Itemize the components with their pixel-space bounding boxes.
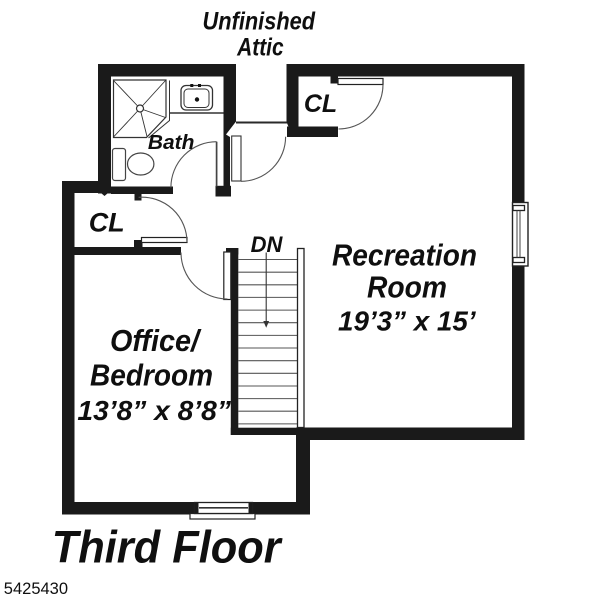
svg-text:Room: Room: [367, 271, 447, 305]
svg-text:Unfinished: Unfinished: [203, 8, 316, 36]
svg-text:CL: CL: [89, 208, 125, 238]
svg-text:Third Floor: Third Floor: [52, 522, 283, 573]
svg-text:Office/: Office/: [110, 324, 202, 358]
svg-text:19’3” x 15’: 19’3” x 15’: [338, 305, 477, 336]
svg-text:Bedroom: Bedroom: [90, 359, 213, 393]
svg-text:Bath: Bath: [148, 131, 195, 154]
svg-text:Recreation: Recreation: [332, 239, 477, 273]
svg-text:Attic: Attic: [236, 34, 283, 62]
svg-text:13’8” x 8’8”: 13’8” x 8’8”: [77, 395, 231, 426]
svg-text:DN: DN: [251, 232, 284, 257]
svg-text:CL: CL: [304, 90, 337, 118]
svg-text:5425430: 5425430: [4, 580, 68, 598]
